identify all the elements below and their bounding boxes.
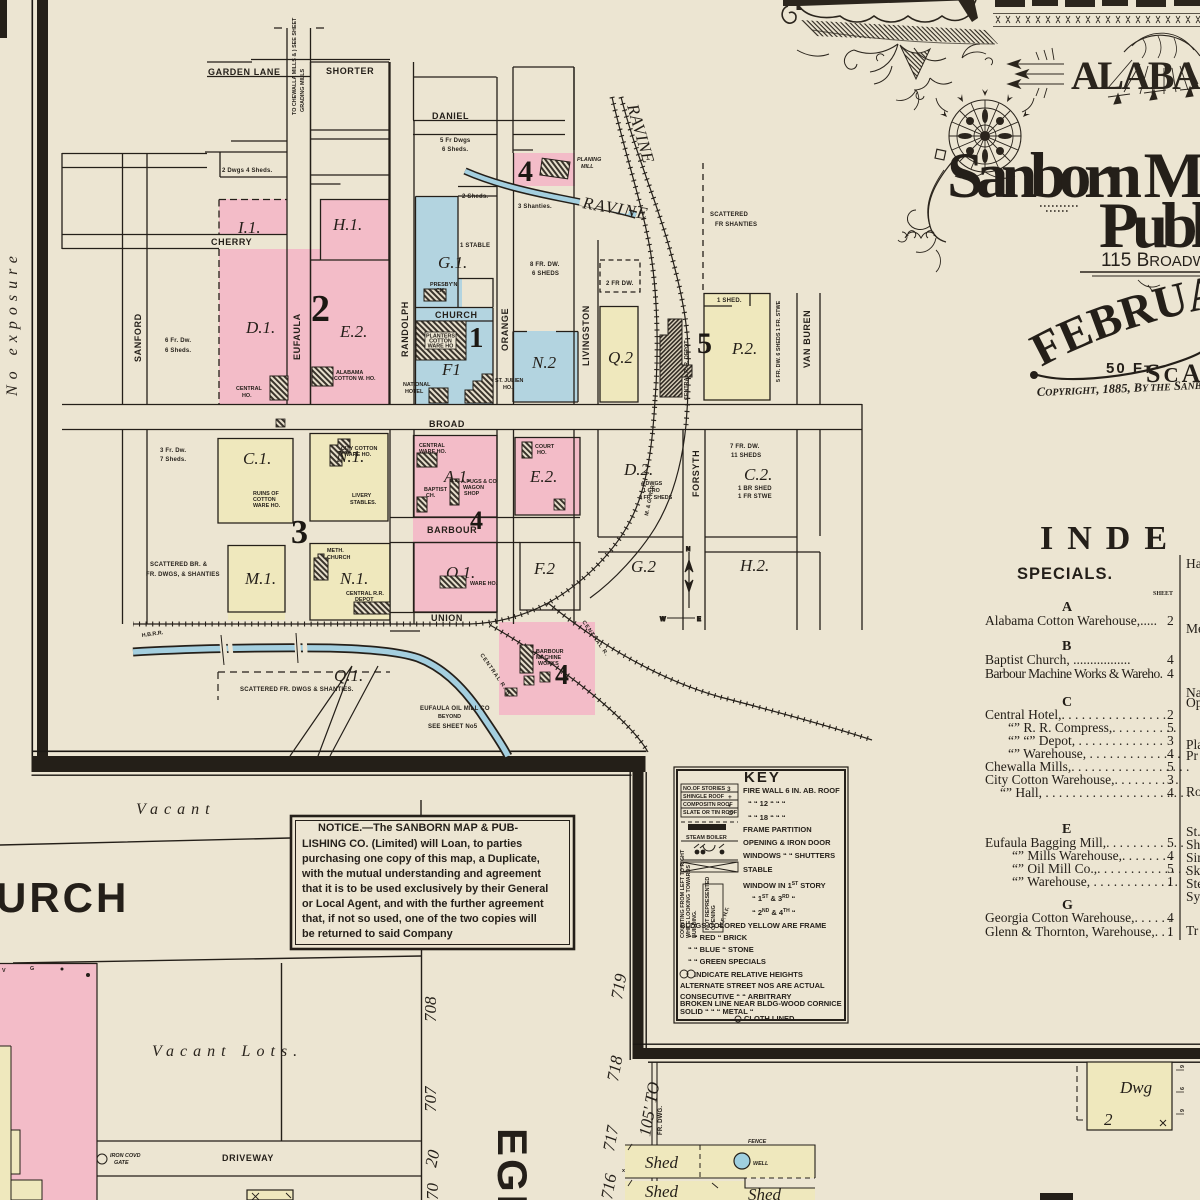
svg-text:9: 9 [1180,1065,1186,1068]
svg-text:FR. DWGS, & SHANTIES: FR. DWGS, & SHANTIES [146,572,220,578]
svg-text:EUFAULA: EUFAULA [292,313,302,360]
svg-text:2: 2 [1167,613,1174,628]
svg-text:1: 1 [1167,924,1174,939]
svg-text:COMPOSITN ROOF: COMPOSITN ROOF [683,802,733,808]
svg-text:FENCE: FENCE [748,1139,767,1145]
svg-text:CLOTH LINED: CLOTH LINED [744,1014,795,1023]
svg-text:URCH: URCH [0,874,129,921]
svg-text:SHINGLE ROOF: SHINGLE ROOF [683,794,725,800]
svg-text:W: W [660,617,666,623]
svg-text:CH.: CH. [436,288,446,294]
svg-text:WELL: WELL [753,1161,768,1167]
svg-text:1: 1 [1167,874,1174,889]
svg-text:OPENING & IRON DOOR: OPENING & IRON DOOR [743,838,831,847]
svg-text:11 SHEDS: 11 SHEDS [731,453,761,459]
svg-text:1 BR SHED: 1 BR SHED [738,486,772,492]
svg-text:4: 4 [1167,666,1174,681]
svg-text:E.2.: E.2. [529,467,557,486]
svg-text:N: N [686,547,691,553]
svg-text:Vacant Lots.: Vacant Lots. [152,1043,303,1060]
svg-text:No exposure: No exposure [4,250,21,397]
svg-text:TO CHEWALLA MILLS & ) SEE SHEE: TO CHEWALLA MILLS & ) SEE SHEET [292,17,298,115]
svg-text:V: V [2,968,6,974]
svg-text:3 Fr. Dw.: 3 Fr. Dw. [160,448,186,454]
svg-text:Q.1.: Q.1. [334,666,363,685]
svg-text:WARE HO: WARE HO [428,344,454,350]
svg-text:70: 70 [423,1183,442,1200]
svg-text:Op: Op [1186,695,1200,710]
svg-text:3: 3 [291,514,308,551]
svg-text:FRAME PARTITION: FRAME PARTITION [743,825,812,834]
svg-text:“ “ BLUE “ STON: “ “ BLUE “ STONE [688,945,754,954]
svg-text:GRADING MILLS: GRADING MILLS [300,68,306,112]
svg-text:“ 2ND & 4TH “: “ 2ND & 4TH “ [752,908,796,917]
svg-text:DEPOT: DEPOT [355,597,374,603]
svg-text:STABLES.: STABLES. [350,500,377,506]
svg-text:7 Sheds.: 7 Sheds. [160,457,186,463]
svg-text:4: 4 [1167,652,1174,667]
svg-text:SPECIALS.: SPECIALS. [1017,565,1113,583]
svg-text:SANFORD: SANFORD [133,313,143,362]
svg-text:E.2.: E.2. [339,322,367,341]
svg-text:EGN: EGN [489,1128,536,1200]
svg-text:Georgia Cotton Warehouse,. .: Georgia Cotton Warehouse,. . . . . . [985,910,1172,925]
svg-text:115 BROADWAY,: 115 BROADWAY, [1101,250,1200,271]
svg-text:708: 708 [421,996,440,1022]
svg-text:or Local Agent, and with the f: or Local Agent, and with the further agr… [302,898,544,910]
svg-text:Vacant: Vacant [136,801,216,818]
svg-text:N.1.: N.1. [339,569,368,588]
svg-text:Shed: Shed [748,1185,782,1200]
svg-text:be returned to said Company: be returned to said Company [302,928,453,940]
svg-text:Dwg: Dwg [1119,1078,1152,1097]
svg-text:LIVERY: LIVERY [352,493,372,499]
svg-text:E: E [697,617,701,623]
svg-text:6: 6 [1180,1087,1186,1090]
svg-text:SCATTERED: SCATTERED [710,212,748,218]
svg-text:PLANING: PLANING [577,157,602,163]
svg-text:STEAM BOILER: STEAM BOILER [686,835,727,841]
svg-text:SHORTER: SHORTER [326,66,374,76]
svg-text:DRIVEWAY: DRIVEWAY [222,1153,274,1163]
svg-text:+: + [728,794,732,801]
svg-text:COTTON W. HO.: COTTON W. HO. [334,376,376,382]
svg-text:Pr: Pr [1186,748,1199,763]
svg-text:G: G [30,966,34,972]
svg-text:6 Sheds.: 6 Sheds. [165,348,191,354]
svg-text:STABLE: STABLE [743,865,772,874]
svg-text:O: O [728,810,733,817]
svg-text:WARE HO.: WARE HO. [470,581,498,587]
svg-text:CHERRY: CHERRY [211,237,252,247]
svg-text:9: 9 [1180,1109,1186,1112]
svg-text:LIVINGSTON: LIVINGSTON [581,305,591,366]
svg-text:Baptist Church, .............: Baptist Church, ................. [985,652,1131,667]
svg-text:NOTICE.—The SANBORN MAP & PUB-: NOTICE.—The SANBORN MAP & PUB- [318,822,518,834]
svg-text:3: 3 [727,786,731,793]
svg-text:7 FR. DW.: 7 FR. DW. [730,444,760,450]
svg-text:VAN BUREN: VAN BUREN [802,310,812,368]
svg-text:N.2: N.2 [531,353,557,372]
svg-text:1 SHED.: 1 SHED. [717,298,742,304]
svg-text:FORSYTH: FORSYTH [691,450,701,497]
svg-text:CH.: CH. [426,493,436,499]
svg-text:ST. JULIEN: ST. JULIEN [495,378,524,384]
svg-text:Shed: Shed [645,1182,679,1200]
svg-text:2 Sheds.: 2 Sheds. [462,194,488,200]
svg-text:“ “ 18 “ “ “: “ “ 18 “ “ “ [748,813,786,822]
svg-text:Ro: Ro [1186,784,1200,799]
svg-text:MILL: MILL [581,164,594,170]
svg-text:M.1.: M.1. [244,569,276,588]
svg-text:BLDGS COLORED YELLOW ARE FRAME: BLDGS COLORED YELLOW ARE FRAME [680,921,826,930]
svg-text:ORANGE: ORANGE [500,308,510,351]
svg-text:x: x [622,1168,625,1174]
svg-text:LISHING CO. (Limited) will Loa: LISHING CO. (Limited) will Loan, to part… [302,838,522,850]
svg-text:1 FR STWE: 1 FR STWE [738,494,772,500]
svg-text:Tr: Tr [1186,923,1199,938]
svg-text:HO.: HO. [242,393,252,399]
svg-text:“” Warehouse, . . . . . .: “” Warehouse, . . . . . . . . . . . . . [1012,874,1178,889]
svg-text:5: 5 [697,327,712,360]
svg-text:2: 2 [1104,1110,1113,1129]
svg-text:CENTRAL: CENTRAL [236,386,262,392]
svg-text:H.2.: H.2. [739,556,769,575]
svg-text:5 FR. DW. 6 SHEDS 1 FR. STWE: 5 FR. DW. 6 SHEDS 1 FR. STWE [776,300,782,382]
svg-text:“” Hall, . . . . . . . . .: “” Hall, . . . . . . . . . . . . . . . .… [1000,785,1190,800]
svg-text:HO.: HO. [503,385,513,391]
svg-text:NATIONAL: NATIONAL [403,382,431,388]
svg-text:RANDOLPH: RANDOLPH [400,301,410,357]
svg-text:BROAD: BROAD [429,419,465,429]
svg-text:D.1.: D.1. [245,318,275,337]
svg-text:SHOP: SHOP [464,491,480,497]
svg-text:“ “ GREEN SPECI: “ “ GREEN SPECIALS [688,957,766,966]
svg-text:C.2.: C.2. [744,465,772,484]
svg-text:INDICATE RELATIVE HEIGHTS: INDICATE RELATIVE HEIGHTS [694,970,803,979]
svg-text:D.2.: D.2. [623,460,653,479]
svg-text:with the mutual understanding: with the mutual understanding and agreem… [301,868,541,880]
svg-text:8 FR. DW.: 8 FR. DW. [530,262,560,268]
svg-text:SOLID “ “ “ M: SOLID “ “ “ METAL “ [680,1007,754,1016]
svg-text:“ “ 12 “ “ “: “ “ 12 “ “ “ [748,799,786,808]
svg-text:ALABA: ALABA [1071,53,1200,98]
svg-text:4: 4 [1167,785,1174,800]
svg-text:BEYOND: BEYOND [438,714,461,720]
svg-text:WINDOW IN 1ST STORY: WINDOW IN 1ST STORY [743,881,826,890]
svg-text:FR SHANTIES: FR SHANTIES [715,222,757,228]
svg-text:3 Shanties.: 3 Shanties. [518,204,552,210]
svg-text:WINDOWS “ “ SHUTTERS: WINDOWS “ “ SHUTTERS [743,851,835,860]
svg-text:6 Fr. Dw.: 6 Fr. Dw. [165,338,191,344]
svg-text:2 Dwgs 4 Sheds.: 2 Dwgs 4 Sheds. [222,168,272,174]
svg-text:CHURCH: CHURCH [435,310,478,320]
svg-text:4: 4 [518,155,533,188]
svg-text:SCATTERED FR. DWGS & SHANTI: SCATTERED FR. DWGS & SHANTIES. [240,687,354,693]
svg-text:P.2.: P.2. [731,339,757,358]
svg-text:SHEET: SHEET [1153,591,1173,597]
svg-text:INDE: INDE [1040,520,1167,557]
svg-text:9 FR. SHEDS: 9 FR. SHEDS [639,495,673,501]
svg-text:F1: F1 [441,360,461,379]
svg-text:WARE HO.: WARE HO. [253,503,281,509]
svg-text:4: 4 [470,506,483,535]
svg-text:UNION: UNION [431,613,463,623]
svg-text:SEE SHEET No5: SEE SHEET No5 [428,724,478,730]
svg-text:GARDEN LANE: GARDEN LANE [208,67,281,77]
svg-text:G.1.: G.1. [438,253,467,272]
svg-text:H.1.: H.1. [332,215,362,234]
svg-text:IRON COVD: IRON COVD [110,1153,141,1159]
svg-text:DANIEL: DANIEL [432,111,469,121]
svg-text:WARE HO.: WARE HO. [344,452,372,458]
svg-text:Sy: Sy [1186,889,1200,904]
svg-text:4: 4 [1167,910,1174,925]
svg-text:5 Fr Dwgs: 5 Fr Dwgs [440,138,471,144]
svg-text:“ “ RED “ BRIC: “ “ RED “ BRICK [688,933,748,942]
svg-text:ALTERNATE STREET NOS ARE ACTUA: ALTERNATE STREET NOS ARE ACTUAL [680,981,825,990]
svg-text:F.2: F.2 [533,559,555,578]
svg-text:Q.2: Q.2 [608,348,634,367]
svg-text:HOTEL: HOTEL [405,389,424,395]
svg-text:Alabama Cotton Warehouse,.....: Alabama Cotton Warehouse,..... [985,613,1157,628]
svg-text:that, if not so used, one of t: that, if not so used, one of the two cop… [302,913,537,925]
svg-text:G.2: G.2 [631,557,657,576]
svg-text:707: 707 [421,1085,440,1112]
svg-text:Barbour Machine Works & Wareho: Barbour Machine Works & Wareho. [985,666,1163,681]
svg-text:WARE HO.: WARE HO. [419,449,447,455]
svg-text:CHURCH: CHURCH [327,555,350,561]
svg-text:Glenn & Thornton, Warehouse,.: Glenn & Thornton, Warehouse,. . . [985,924,1172,939]
svg-text:FIRE WALL 6 IN. AB. ROOF: FIRE WALL 6 IN. AB. ROOF [743,786,840,795]
svg-text:“ 1ST & 3RD “: “ 1ST & 3RD “ [752,894,795,903]
svg-text:METH.: METH. [327,548,344,554]
svg-text:FR. DWG.: FR. DWG. [658,1106,664,1135]
svg-text:Me: Me [1186,621,1200,636]
svg-text:2: 2 [311,288,330,330]
svg-text:I.1.: I.1. [237,218,261,237]
svg-text:NO.OF STORIES: NO.OF STORIES [683,786,726,792]
svg-text:Shed: Shed [645,1153,679,1172]
svg-text:SCATTERED BR. &: SCATTERED BR. & [150,562,208,568]
svg-text:CENTRAL R. R. DEPOT: CENTRAL R. R. DEPOT [684,340,690,400]
svg-text:1: 1 [469,322,484,354]
svg-text:HO.: HO. [537,450,547,456]
svg-text:that it is to be used exclusiv: that it is to be used exclusively by the… [302,883,548,895]
svg-text:GATE: GATE [114,1160,129,1166]
svg-text:2 FR DW.: 2 FR DW. [606,281,634,287]
svg-text:6 SHEDS: 6 SHEDS [532,271,559,277]
svg-text:1 STABLE: 1 STABLE [460,243,490,249]
svg-text:Ha: Ha [1186,556,1200,571]
svg-text:WORKS: WORKS [538,661,559,667]
svg-text:EUFAULA OIL MILL CO: EUFAULA OIL MILL CO [420,706,490,712]
svg-text:purchasing one copy of this ma: purchasing one copy of this map, a Dupli… [302,853,540,865]
svg-text:●: ● [728,803,731,809]
svg-text:KEY: KEY [744,769,781,786]
svg-text:C.1.: C.1. [243,449,271,468]
svg-text:6 Sheds.: 6 Sheds. [442,147,468,153]
